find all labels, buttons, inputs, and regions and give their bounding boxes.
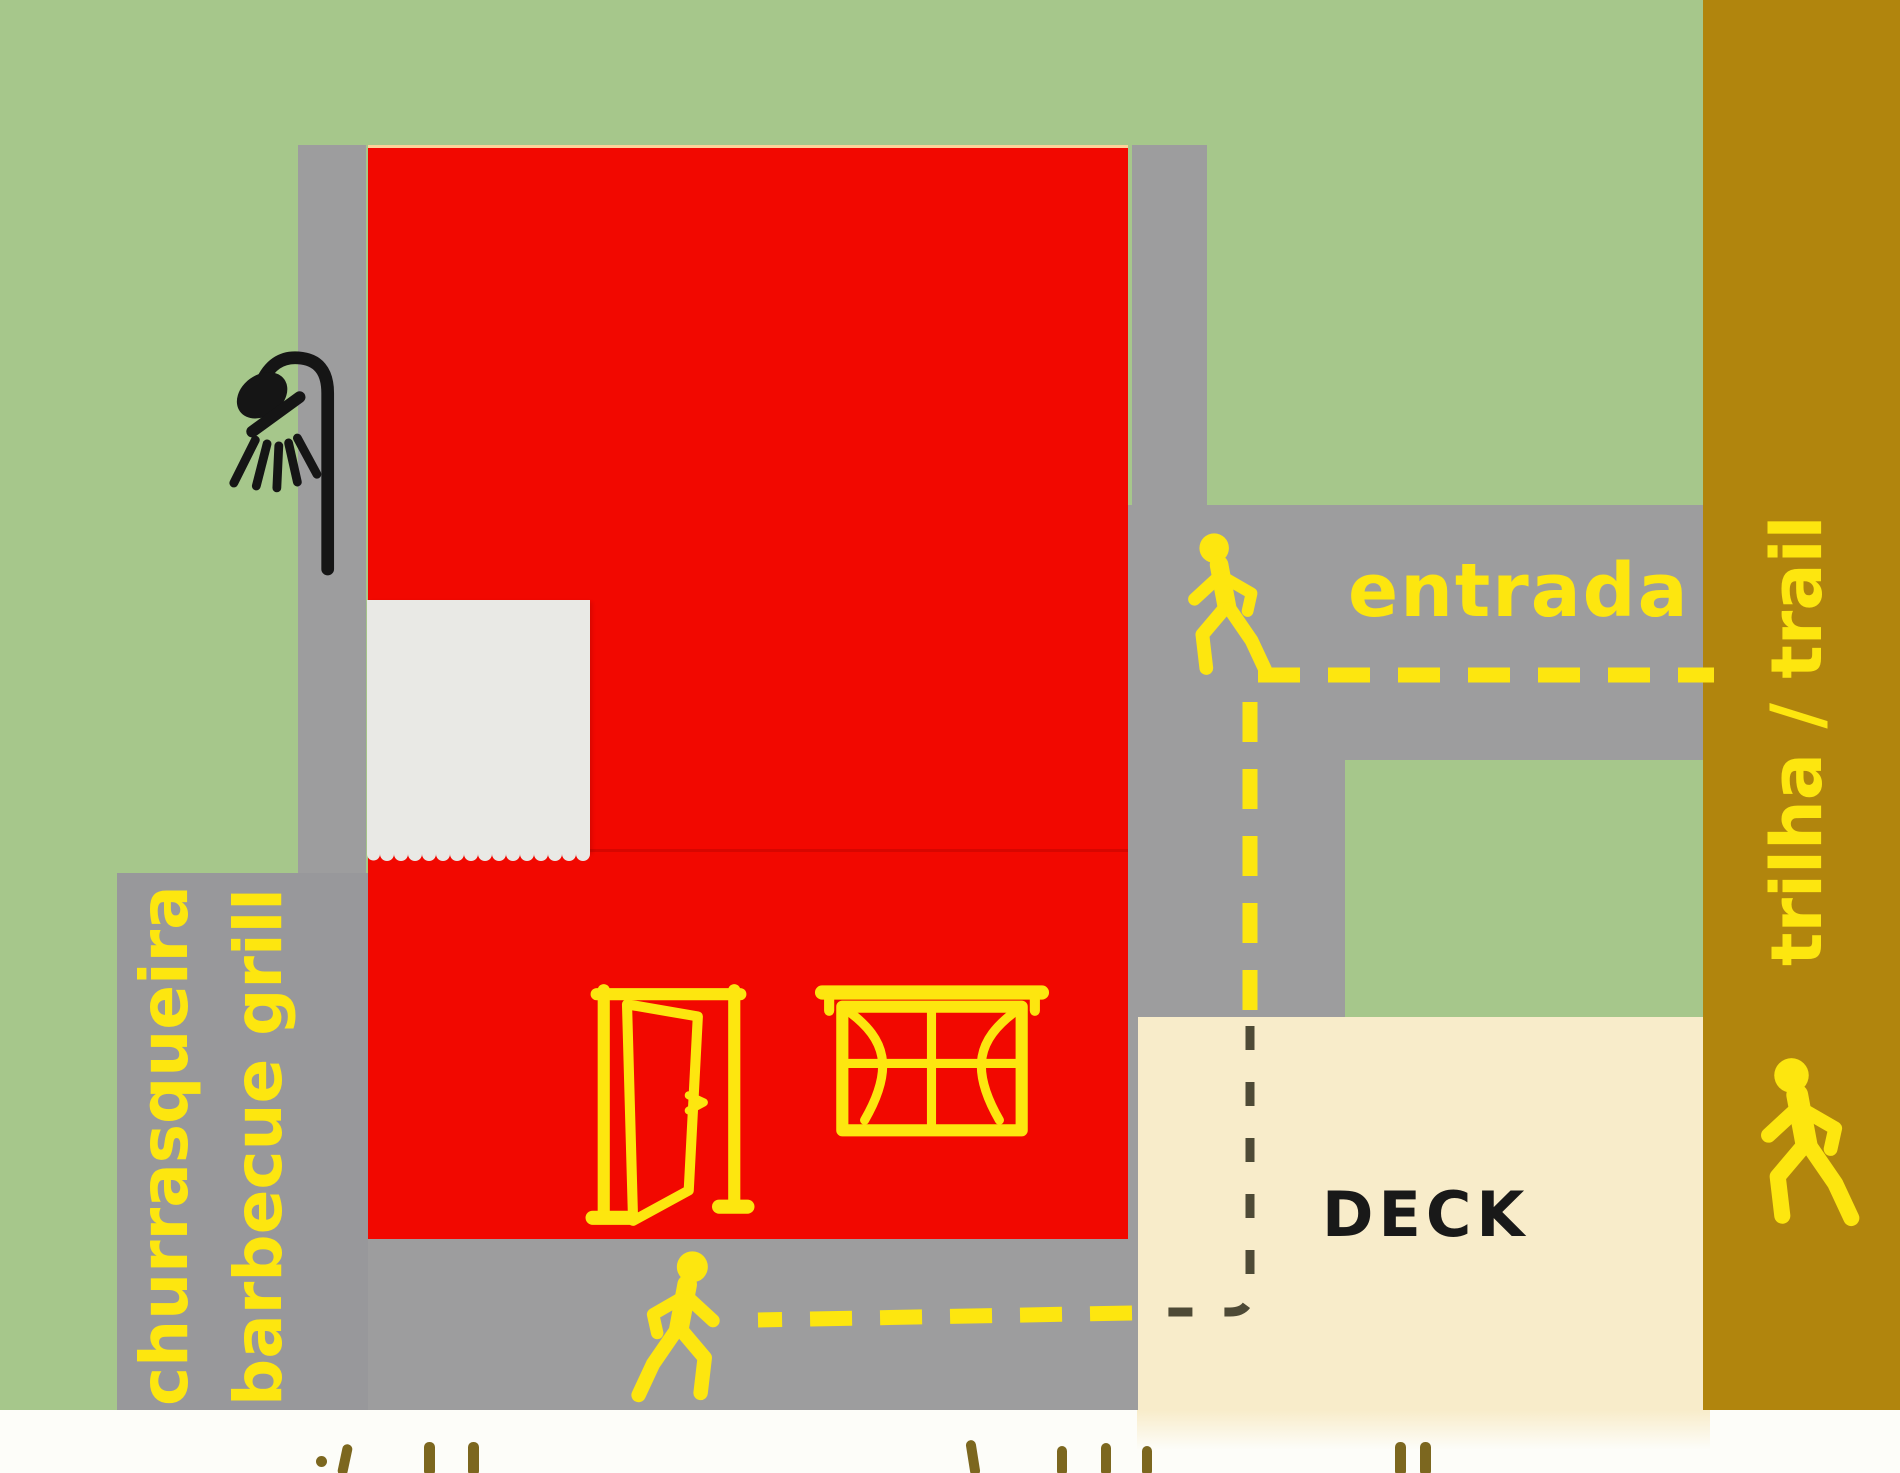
cut-off-text-fragment (468, 1442, 479, 1473)
cut-off-text-fragment (1057, 1446, 1067, 1473)
cut-off-text-fragment (1101, 1443, 1111, 1473)
walking-person-icon (1165, 532, 1283, 690)
cut-off-text-fragment (424, 1442, 435, 1473)
bottom-dashed-line (758, 1313, 1132, 1320)
site-map: entrada DECK churrasqueira barbecue gril… (0, 0, 1900, 1473)
entrada-label: entrada (1348, 548, 1690, 634)
walking-person-icon (1734, 1056, 1872, 1242)
walking-person-icon (620, 1250, 744, 1416)
deck-label: DECK (1322, 1178, 1529, 1251)
barbecue-grill-label: barbecue grill (220, 866, 297, 1406)
cut-off-text-fragment (316, 1456, 327, 1467)
window-icon (818, 978, 1046, 1156)
cut-off-text-fragment (1395, 1442, 1406, 1473)
trail-label: trilha / trail (1756, 386, 1838, 966)
cut-off-text-fragment (1142, 1446, 1152, 1473)
cut-off-text-fragment (1420, 1442, 1431, 1473)
deck-dashed-line (1146, 1026, 1250, 1312)
door-icon (590, 978, 748, 1236)
shower-icon (226, 342, 358, 582)
churrasqueira-label: churrasqueira (126, 866, 203, 1406)
